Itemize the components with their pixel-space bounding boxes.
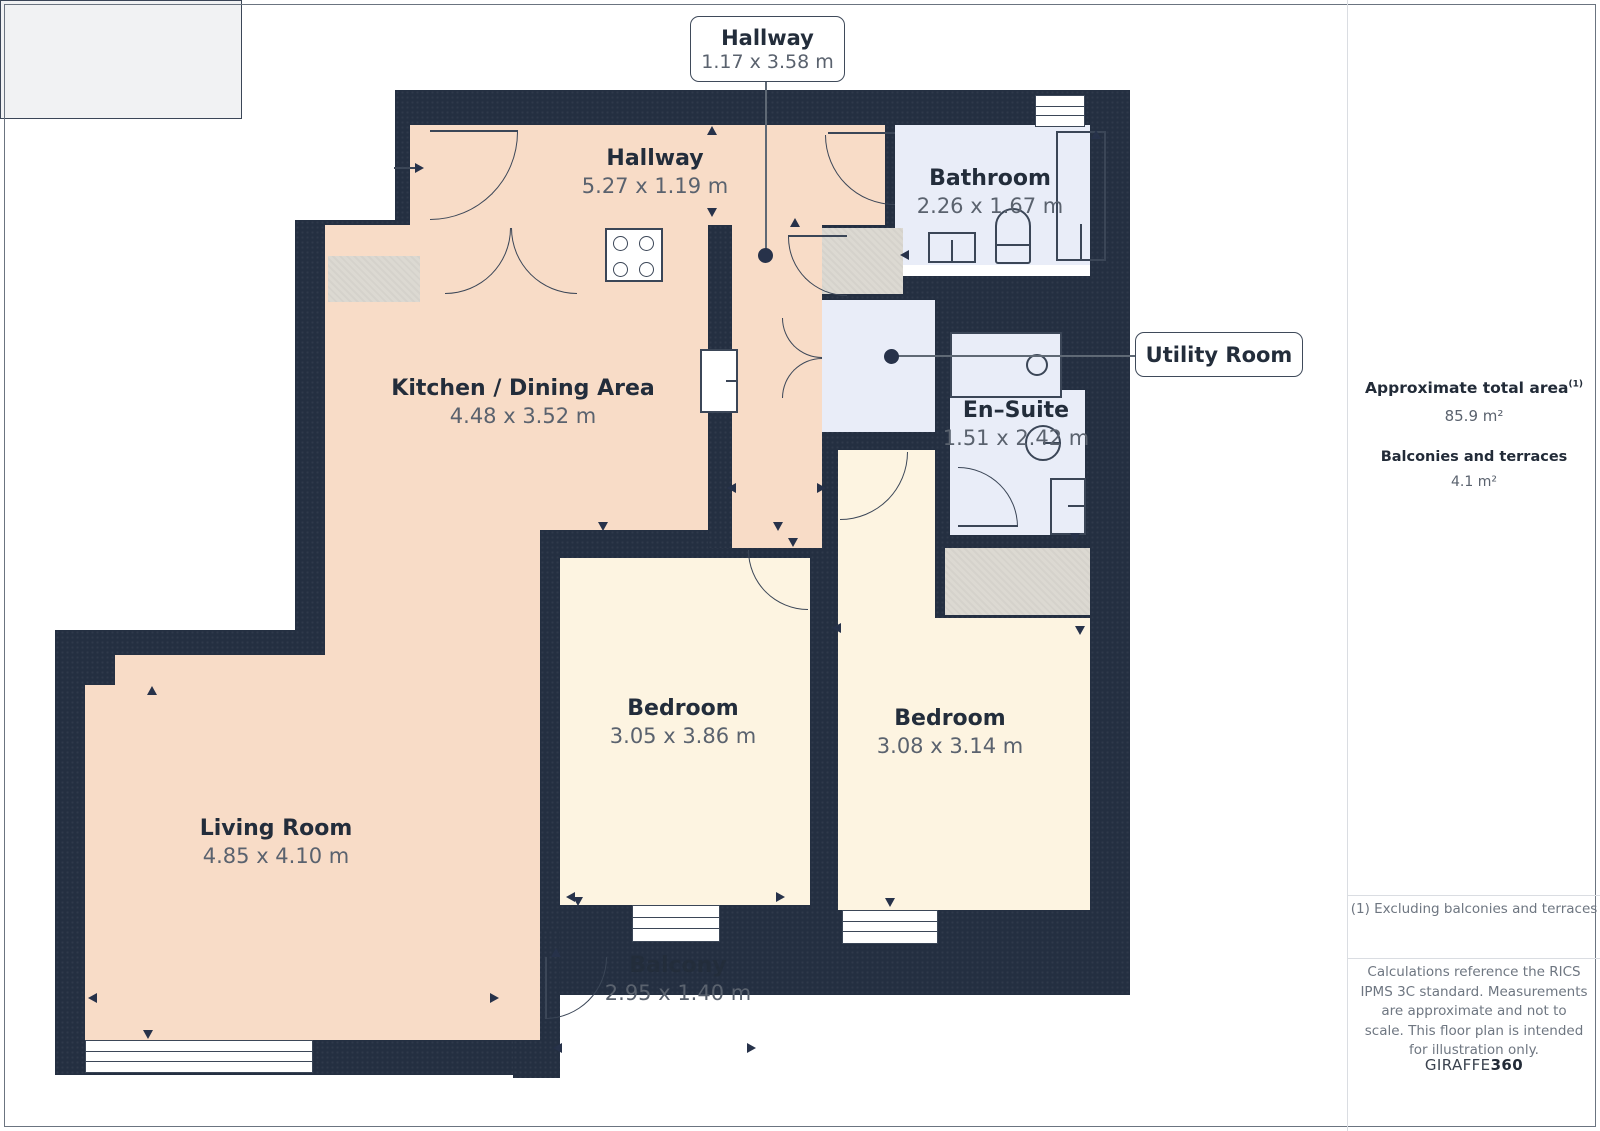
floorplan-page: Hallway 1.17 x 3.58 m Utility Room Hallw… [0,0,1600,1131]
marker-icon [900,250,909,260]
marker-icon [1070,533,1080,542]
sidebar-footnote: (1) Excluding balconies and terraces [1348,901,1600,917]
room-label-kitchen: Kitchen / Dining Area 4.48 x 3.52 m [391,376,654,428]
marker-icon [747,1043,756,1053]
window-bedroom2 [842,910,938,944]
utility-leader-dot [884,349,899,364]
closet-door-leaf [788,235,847,237]
bathroom-door-leaf [828,132,895,134]
balconies-label: Balconies and terraces [1348,449,1600,465]
marker-icon [88,993,97,1003]
marker-icon [553,1043,562,1053]
hallway-leader-dot [758,248,773,263]
floor-balcony [0,0,242,119]
marker-icon [1091,130,1101,139]
brand-logo: GIRAFFE360 [1348,1056,1600,1074]
room-dims: 4.85 x 4.10 m [200,844,353,868]
room-dims: 3.05 x 3.86 m [610,724,756,748]
room-label-bedroom1: Bedroom 3.05 x 3.86 m [610,696,756,748]
sidebar-divider-1 [1348,895,1600,896]
marker-icon [490,993,499,1003]
stove-burner-icon [639,262,654,277]
stove-burner-icon [639,236,654,251]
room-label-ensuite: En–Suite 1.51 x 2.42 m [943,398,1089,450]
marker-icon [598,522,608,531]
sidebar-divider-vertical [1347,0,1348,1131]
sidebar-divider-2 [1348,958,1600,959]
washer-door-icon [1026,354,1048,376]
room-name: Bedroom [877,706,1023,731]
bathtub-drain-line [1080,224,1082,260]
marker-icon [707,126,717,135]
marker-icon [727,483,736,493]
entrance-arrow-icon [415,163,424,173]
room-label-bedroom2: Bedroom 3.08 x 3.14 m [877,706,1023,758]
room-dims: 3.08 x 3.14 m [877,734,1023,758]
brand-name: GIRAFFE [1425,1056,1491,1074]
room-dims: 2.95 x 1.40 m [605,981,751,1005]
ensuite-door-leaf [958,525,1018,527]
total-area-superscript: (1) [1568,380,1583,390]
total-area-value: 85.9 m² [1348,407,1600,425]
bathroom-toilet-line [995,244,1031,246]
window-bathroom [1035,95,1085,127]
marker-icon [143,1030,153,1039]
ensuite-shower-line [1068,505,1086,507]
marker-icon [551,948,561,957]
sidebar-disclaimer: Calculations reference the RICS IPMS 3C … [1360,963,1588,1061]
callout-utility-room: Utility Room [1135,332,1303,377]
marker-icon [790,218,800,227]
room-label-hallway: Hallway 5.27 x 1.19 m [582,146,728,198]
utility-leader-line [891,355,1135,357]
room-label-bathroom: Bathroom 2.26 x 1.67 m [917,166,1063,218]
wall-divider-lower [708,415,732,548]
marker-icon [1075,626,1085,635]
stove-burner-icon [613,236,628,251]
marker-icon [788,538,798,547]
marker-icon [885,898,895,907]
kitchen-door-tick [726,380,738,382]
entrance-door-leaf [430,130,518,132]
balconies-value: 4.1 m² [1348,474,1600,490]
marker-icon [832,623,841,633]
room-name: Kitchen / Dining Area [391,376,654,401]
total-area-label: Approximate total area(1) [1348,378,1600,397]
callout-hallway: Hallway 1.17 x 3.58 m [690,16,845,82]
callout-dims: 1.17 x 3.58 m [701,51,833,73]
room-name: Balcony [605,953,751,978]
room-name: Bathroom [917,166,1063,191]
wall-divider-upper [708,225,732,350]
marker-icon [707,208,717,217]
window-bedroom1 [632,905,720,942]
room-name: Bedroom [610,696,756,721]
room-name: En–Suite [943,398,1089,423]
room-name: Living Room [200,816,353,841]
balcony-door-leaf [545,957,547,1019]
brand-suffix: 360 [1491,1056,1524,1074]
room-dims: 2.26 x 1.67 m [917,194,1063,218]
marker-icon [573,897,583,906]
room-dims: 4.48 x 3.52 m [391,404,654,428]
marker-icon [776,892,785,902]
room-dims: 1.51 x 2.42 m [943,426,1089,450]
room-name: Hallway [582,146,728,171]
room-label-balcony: Balcony 2.95 x 1.40 m [605,953,751,1005]
room-label-living: Living Room 4.85 x 4.10 m [200,816,353,868]
marker-icon [773,522,783,531]
stove-burner-icon [613,262,628,277]
marker-icon [817,483,826,493]
bathroom-sink-line [951,240,953,263]
marker-icon [147,686,157,695]
sidebar-area-block: Approximate total area(1) 85.9 m² Balcon… [1348,378,1600,490]
total-area-text: Approximate total area [1365,379,1568,397]
callout-title: Utility Room [1146,343,1293,367]
hallway-leader-line [765,82,767,254]
room-dims: 5.27 x 1.19 m [582,174,728,198]
callout-title: Hallway [721,26,814,50]
window-living [85,1040,313,1073]
